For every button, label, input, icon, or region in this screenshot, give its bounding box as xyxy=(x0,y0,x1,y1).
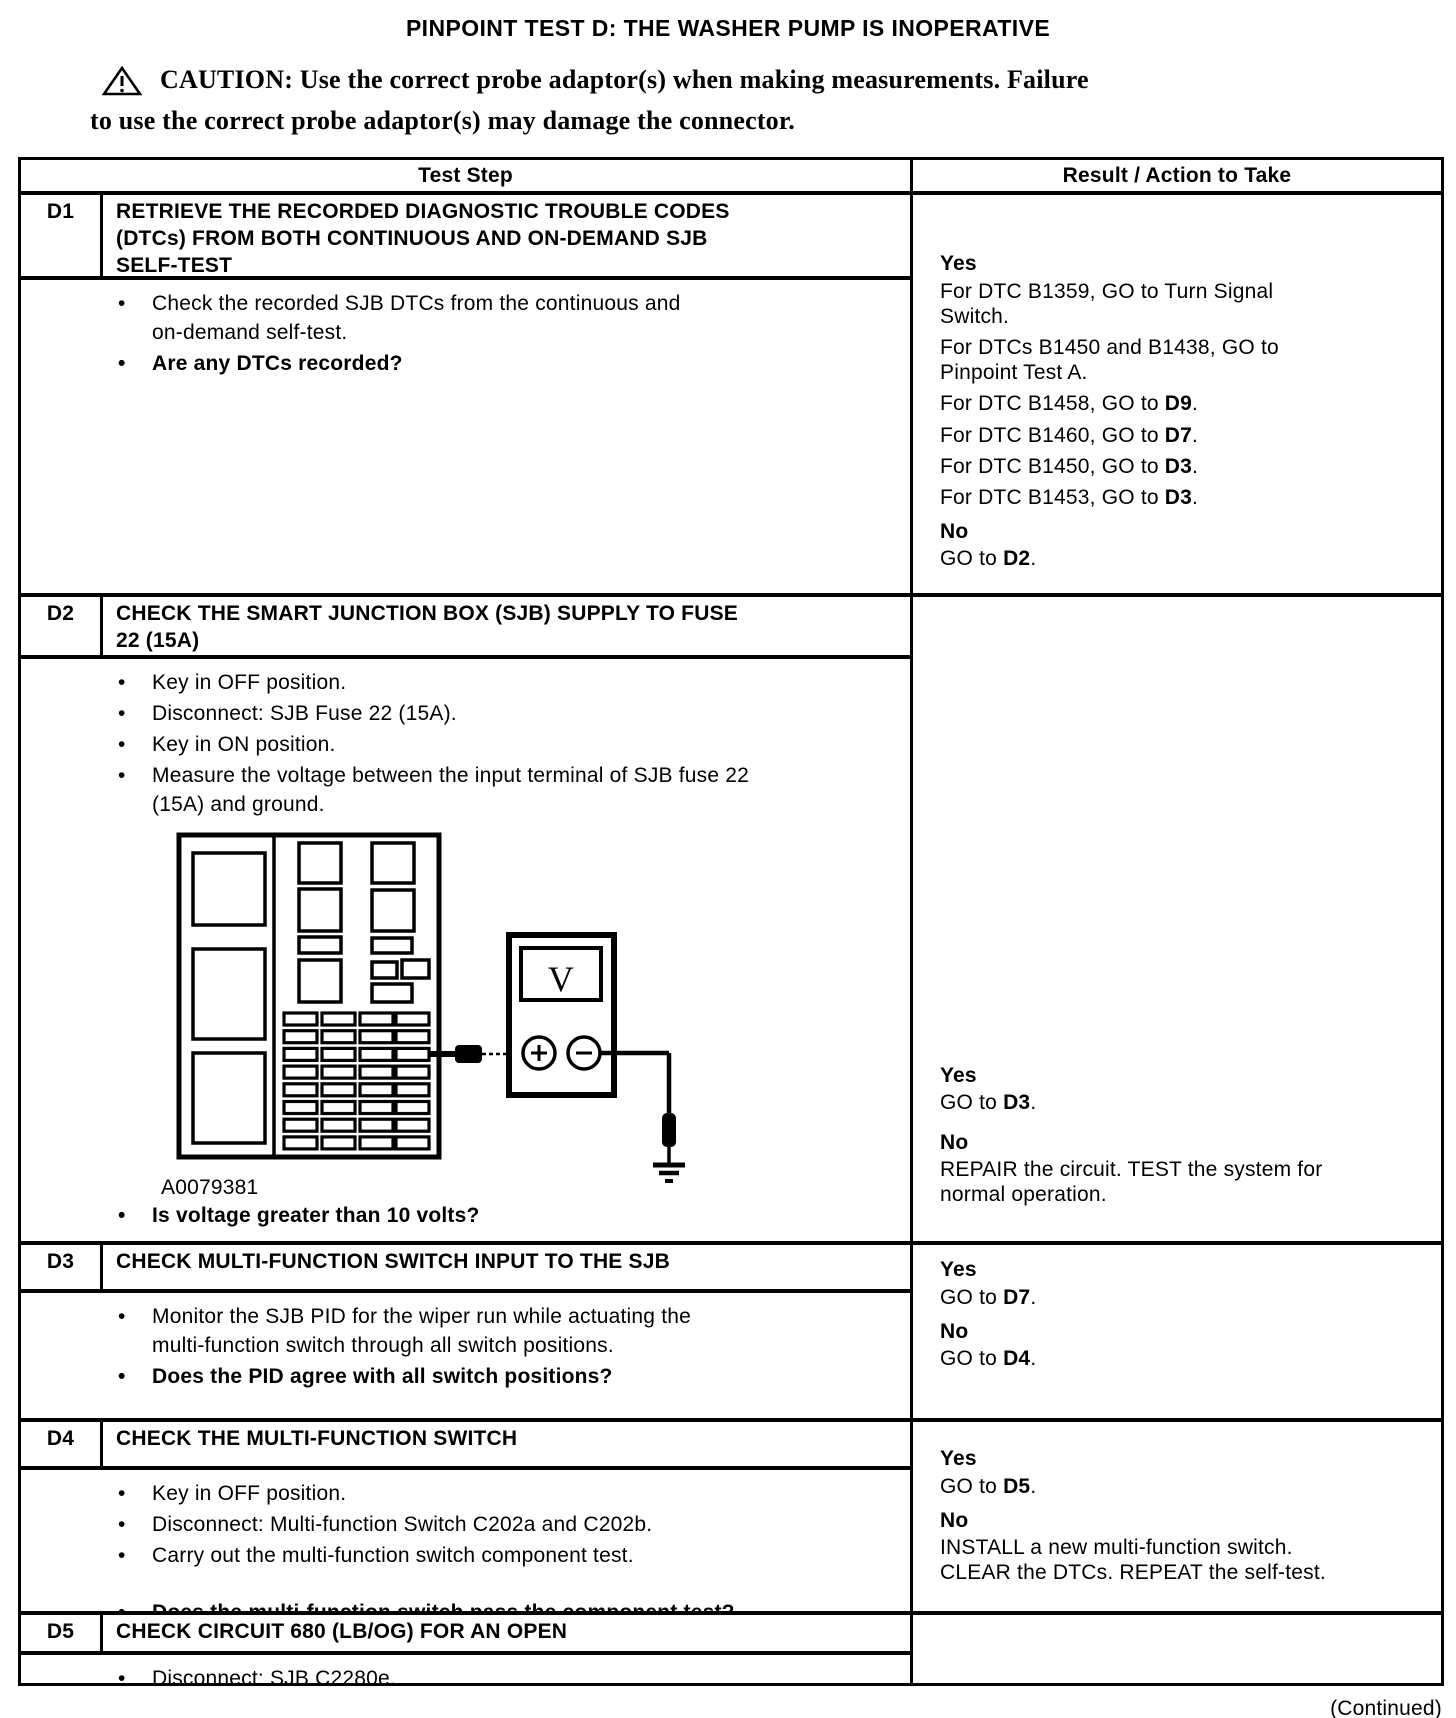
step-title: CHECK MULTI-FUNCTION SWITCH INPUT TO THE… xyxy=(103,1245,910,1289)
result-answer-label: Yes xyxy=(940,1257,1431,1282)
result-action-line: For DTC B1460, GO to D7. xyxy=(940,423,1431,448)
table-row: D1 RETRIEVE THE RECORDED DIAGNOSTIC TROU… xyxy=(21,191,1441,593)
test-step-bullet: •Check the recorded SJB DTCs from the co… xyxy=(21,290,898,348)
step-header: D2 CHECK THE SMART JUNCTION BOX (SJB) SU… xyxy=(21,597,910,659)
step-body: •Key in OFF position.•Disconnect: Multi-… xyxy=(21,1470,910,1611)
step-text: Monitor the SJB PID for the wiper run wh… xyxy=(152,1303,691,1361)
result-action-line: GO to D7. xyxy=(940,1285,1431,1310)
step-bullets: •Key in OFF position.•Disconnect: SJB Fu… xyxy=(21,669,898,820)
bullet-icon: • xyxy=(118,762,152,820)
result-cell: YesGO to D5.NoINSTALL a new multi-functi… xyxy=(913,1422,1441,1611)
result-answer-label: Yes xyxy=(940,1446,1431,1471)
table-row: D5 CHECK CIRCUIT 680 (LB/OG) FOR AN OPEN… xyxy=(21,1611,1441,1683)
step-header: D3 CHECK MULTI-FUNCTION SWITCH INPUT TO … xyxy=(21,1245,910,1293)
result-cell xyxy=(913,1615,1441,1683)
test-step-cell: D4 CHECK THE MULTI-FUNCTION SWITCH •Key … xyxy=(21,1422,913,1611)
caution-text-1: CAUTION: Use the correct probe adaptor(s… xyxy=(160,64,1089,96)
step-header: D5 CHECK CIRCUIT 680 (LB/OG) FOR AN OPEN xyxy=(21,1615,910,1655)
bullet-icon: • xyxy=(118,1363,152,1392)
test-step-bullet: •Carry out the multi-function switch com… xyxy=(21,1542,898,1571)
result-answer-label: No xyxy=(940,1130,1431,1155)
step-text: Key in OFF position. xyxy=(152,1480,346,1509)
bullet-icon: • xyxy=(118,1303,152,1361)
result-cell: YesGO to D3.NoREPAIR the circuit. TEST t… xyxy=(913,597,1441,1241)
step-title: CHECK CIRCUIT 680 (LB/OG) FOR AN OPEN xyxy=(103,1615,910,1651)
step-title: CHECK THE MULTI-FUNCTION SWITCH xyxy=(103,1422,910,1466)
figure-caption: A0079381 xyxy=(161,1176,258,1199)
warning-triangle-icon xyxy=(102,66,142,105)
result-action-line: GO to D2. xyxy=(940,546,1431,571)
bullet-icon: • xyxy=(118,350,152,379)
step-question: •Is voltage greater than 10 volts? xyxy=(21,1202,898,1231)
result-action-line: For DTC B1453, GO to D3. xyxy=(940,485,1431,510)
relay-slots-right xyxy=(372,843,429,1002)
step-text: Are any DTCs recorded? xyxy=(152,350,403,379)
table-row: D3 CHECK MULTI-FUNCTION SWITCH INPUT TO … xyxy=(21,1241,1441,1418)
test-step-bullet: •Monitor the SJB PID for the wiper run w… xyxy=(21,1303,898,1361)
bullet-icon: • xyxy=(118,1202,152,1231)
test-step-bullet: •Disconnect: SJB C2280e. xyxy=(21,1665,898,1683)
continued-label: (Continued) xyxy=(0,1697,1442,1718)
bullet-icon: • xyxy=(118,700,152,729)
bullet-icon: • xyxy=(118,669,152,698)
step-id: D5 xyxy=(21,1615,103,1651)
step-title: CHECK THE SMART JUNCTION BOX (SJB) SUPPL… xyxy=(103,597,910,655)
caution-note: CAUTION: Use the correct probe adaptor(s… xyxy=(90,64,1368,136)
test-step-cell: D5 CHECK CIRCUIT 680 (LB/OG) FOR AN OPEN… xyxy=(21,1615,913,1683)
bullet-icon: • xyxy=(118,1665,152,1683)
ground-symbol-icon xyxy=(653,1165,685,1181)
result-action-line: GO to D4. xyxy=(940,1346,1431,1371)
step-title: RETRIEVE THE RECORDED DIAGNOSTIC TROUBLE… xyxy=(103,195,910,276)
step-header: D4 CHECK THE MULTI-FUNCTION SWITCH xyxy=(21,1422,910,1470)
test-step-cell: D3 CHECK MULTI-FUNCTION SWITCH INPUT TO … xyxy=(21,1245,913,1418)
step-text: Disconnect: Multi-function Switch C202a … xyxy=(152,1511,652,1540)
step-text: Check the recorded SJB DTCs from the con… xyxy=(152,290,680,348)
voltmeter: V xyxy=(509,935,614,1095)
bullet-icon: • xyxy=(118,1480,152,1509)
step-text: Disconnect: SJB Fuse 22 (15A). xyxy=(152,700,457,729)
relay-slots-left xyxy=(193,853,265,1143)
step-id: D4 xyxy=(21,1422,103,1466)
step-text: Does the multi-function switch pass the … xyxy=(152,1599,735,1611)
test-step-bullet: •Disconnect: Multi-function Switch C202a… xyxy=(21,1511,898,1540)
step-text: Measure the voltage between the input te… xyxy=(152,762,749,820)
test-step-bullet: •Is voltage greater than 10 volts? xyxy=(21,1202,898,1231)
table-row: D2 CHECK THE SMART JUNCTION BOX (SJB) SU… xyxy=(21,593,1441,1241)
step-body: •Key in OFF position.•Disconnect: SJB Fu… xyxy=(21,659,910,1241)
result-cell: YesGO to D7.NoGO to D4. xyxy=(913,1245,1441,1418)
result-answer-label: No xyxy=(940,1319,1431,1344)
pinpoint-test-table: Test Step Result / Action to Take D1 RET… xyxy=(18,157,1444,1686)
result-action-line: GO to D3. xyxy=(940,1090,1431,1115)
result-answer-label: No xyxy=(940,519,1431,544)
document-page: PINPOINT TEST D: THE WASHER PUMP IS INOP… xyxy=(0,0,1456,1718)
bullet-icon: • xyxy=(118,1511,152,1540)
voltmeter-display-label: V xyxy=(548,959,574,999)
test-step-bullet: •Key in OFF position. xyxy=(21,1480,898,1509)
test-step-bullet: •Key in OFF position. xyxy=(21,669,898,698)
step-body: •Disconnect: SJB C2280e. xyxy=(21,1655,910,1683)
step-text: Disconnect: SJB C2280e. xyxy=(152,1665,396,1683)
result-answer-label: Yes xyxy=(940,1063,1431,1088)
step-text: Key in OFF position. xyxy=(152,669,346,698)
result-action-line: INSTALL a new multi-function switch. CLE… xyxy=(940,1535,1431,1585)
page-title: PINPOINT TEST D: THE WASHER PUMP IS INOP… xyxy=(0,0,1456,42)
result-action-line: REPAIR the circuit. TEST the system for … xyxy=(940,1157,1431,1207)
bullet-icon: • xyxy=(118,731,152,760)
test-step-cell: D1 RETRIEVE THE RECORDED DIAGNOSTIC TROU… xyxy=(21,195,913,593)
step-text: Does the PID agree with all switch posit… xyxy=(152,1363,613,1392)
step-id: D2 xyxy=(21,597,103,655)
bullet-icon: • xyxy=(118,1542,152,1571)
bullet-icon: • xyxy=(118,1599,152,1611)
plus-icon xyxy=(531,1045,547,1061)
table-row: D4 CHECK THE MULTI-FUNCTION SWITCH •Key … xyxy=(21,1418,1441,1611)
step-text: Is voltage greater than 10 volts? xyxy=(152,1202,480,1231)
result-action-line: For DTC B1450, GO to D3. xyxy=(940,454,1431,479)
bullet-icon: • xyxy=(118,290,152,348)
test-step-cell: D2 CHECK THE SMART JUNCTION BOX (SJB) SU… xyxy=(21,597,913,1241)
step-text: Key in ON position. xyxy=(152,731,336,760)
result-action-line: GO to D5. xyxy=(940,1474,1431,1499)
test-step-bullet: •Are any DTCs recorded? xyxy=(21,350,898,379)
table-header-row: Test Step Result / Action to Take xyxy=(21,160,1441,191)
test-step-bullet: •Does the PID agree with all switch posi… xyxy=(21,1363,898,1392)
step-id: D3 xyxy=(21,1245,103,1289)
step-header: D1 RETRIEVE THE RECORDED DIAGNOSTIC TROU… xyxy=(21,195,910,280)
result-action-line: For DTC B1458, GO to D9. xyxy=(940,391,1431,416)
result-cell: YesFor DTC B1359, GO to Turn Signal Swit… xyxy=(913,195,1441,593)
column-header-result: Result / Action to Take xyxy=(913,160,1441,191)
test-step-bullet: •Does the multi-function switch pass the… xyxy=(21,1599,898,1611)
result-action-line: For DTCs B1450 and B1438, GO to Pinpoint… xyxy=(940,335,1431,385)
step-id: D1 xyxy=(21,195,103,276)
step-body: •Check the recorded SJB DTCs from the co… xyxy=(21,280,910,593)
result-answer-label: Yes xyxy=(940,251,1431,276)
result-answer-label: No xyxy=(940,1508,1431,1533)
test-step-bullet: •Measure the voltage between the input t… xyxy=(21,762,898,820)
fuse-grid xyxy=(284,1013,429,1149)
fuse-box-voltmeter-figure: V xyxy=(159,820,719,1200)
step-body: •Monitor the SJB PID for the wiper run w… xyxy=(21,1293,910,1418)
step-text: Carry out the multi-function switch comp… xyxy=(152,1542,634,1571)
column-header-test-step: Test Step xyxy=(21,160,913,191)
caution-line-1: CAUTION: Use the correct probe adaptor(s… xyxy=(90,64,1368,105)
test-step-bullet: •Key in ON position. xyxy=(21,731,898,760)
caution-text-2: to use the correct probe adaptor(s) may … xyxy=(90,105,1368,137)
test-step-bullet: •Disconnect: SJB Fuse 22 (15A). xyxy=(21,700,898,729)
result-action-line: For DTC B1359, GO to Turn Signal Switch. xyxy=(940,279,1431,329)
relay-slots-middle xyxy=(299,843,341,1002)
